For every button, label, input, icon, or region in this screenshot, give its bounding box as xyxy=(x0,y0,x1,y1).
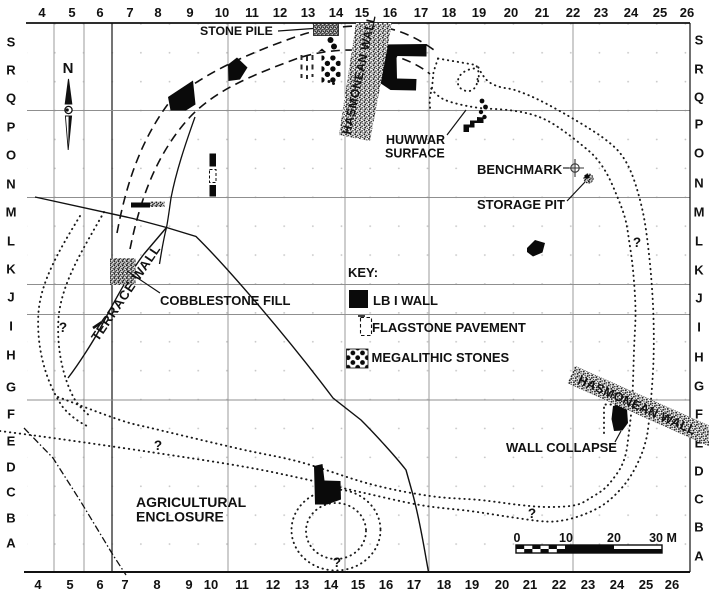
svg-text:C: C xyxy=(694,492,704,507)
svg-text:8: 8 xyxy=(153,577,160,592)
svg-text:18: 18 xyxy=(442,5,456,20)
svg-text:4: 4 xyxy=(34,577,42,592)
svg-text:N: N xyxy=(63,60,74,77)
svg-text:19: 19 xyxy=(465,577,479,592)
svg-text:10: 10 xyxy=(204,577,218,592)
svg-text:21: 21 xyxy=(535,5,549,20)
svg-text:22: 22 xyxy=(566,5,580,20)
svg-text:9: 9 xyxy=(186,5,193,20)
svg-text:O: O xyxy=(694,146,704,161)
svg-text:H: H xyxy=(694,350,703,365)
svg-text:STORAGE PIT: STORAGE PIT xyxy=(477,197,565,212)
svg-text:5: 5 xyxy=(66,577,73,592)
svg-text:G: G xyxy=(694,379,704,394)
svg-text:6: 6 xyxy=(96,5,103,20)
svg-text:7: 7 xyxy=(126,5,133,20)
svg-text:18: 18 xyxy=(437,577,451,592)
svg-text:LB I WALL: LB I WALL xyxy=(373,293,438,308)
svg-text:26: 26 xyxy=(680,5,694,20)
svg-text:30 M: 30 M xyxy=(649,531,677,545)
svg-text:R: R xyxy=(694,62,704,77)
svg-text:22: 22 xyxy=(552,577,566,592)
svg-text:4: 4 xyxy=(38,5,46,20)
svg-text:S: S xyxy=(695,33,704,48)
svg-text:Q: Q xyxy=(694,90,704,105)
svg-text:26: 26 xyxy=(665,577,679,592)
svg-text:11: 11 xyxy=(245,5,259,20)
svg-text:N: N xyxy=(694,176,703,191)
svg-text:?: ? xyxy=(528,506,536,521)
svg-text:F: F xyxy=(695,407,703,422)
svg-text:8: 8 xyxy=(154,5,161,20)
svg-text:D: D xyxy=(6,460,15,475)
svg-text:WALL COLLAPSE: WALL COLLAPSE xyxy=(506,440,617,455)
svg-text:12: 12 xyxy=(266,577,280,592)
svg-text:MEGALITHIC STONES: MEGALITHIC STONES xyxy=(372,350,510,365)
svg-text:20: 20 xyxy=(504,5,518,20)
svg-text:16: 16 xyxy=(379,577,393,592)
svg-text:HUWWAR: HUWWAR xyxy=(386,133,445,147)
svg-text:KEY:: KEY: xyxy=(348,265,378,280)
svg-text:5: 5 xyxy=(68,5,75,20)
svg-text:20: 20 xyxy=(495,577,509,592)
svg-text:O: O xyxy=(6,148,16,163)
svg-text:25: 25 xyxy=(653,5,667,20)
svg-text:K: K xyxy=(694,263,704,278)
svg-text:M: M xyxy=(694,205,705,220)
svg-text:13: 13 xyxy=(301,5,315,20)
svg-text:FLAGSTONE PAVEMENT: FLAGSTONE PAVEMENT xyxy=(372,320,526,335)
svg-text:7: 7 xyxy=(121,577,128,592)
svg-text:19: 19 xyxy=(472,5,486,20)
svg-text:25: 25 xyxy=(639,577,653,592)
svg-text:S: S xyxy=(7,35,16,50)
svg-text:10: 10 xyxy=(559,531,573,545)
svg-text:G: G xyxy=(6,380,16,395)
svg-text:COBBLESTONE FILL: COBBLESTONE FILL xyxy=(160,293,291,308)
svg-text:23: 23 xyxy=(581,577,595,592)
svg-text:9: 9 xyxy=(185,577,192,592)
svg-text:Q: Q xyxy=(6,91,16,106)
svg-text:A: A xyxy=(694,549,704,564)
svg-text:STONE PILE: STONE PILE xyxy=(200,24,273,38)
svg-text:24: 24 xyxy=(610,577,625,592)
svg-text:K: K xyxy=(6,262,16,277)
svg-text:M: M xyxy=(6,205,17,220)
svg-text:14: 14 xyxy=(329,5,344,20)
svg-text:14: 14 xyxy=(324,577,339,592)
svg-text:C: C xyxy=(6,485,16,500)
svg-text:0: 0 xyxy=(514,531,521,545)
svg-text:10: 10 xyxy=(215,5,229,20)
svg-text:12: 12 xyxy=(273,5,287,20)
svg-text:21: 21 xyxy=(523,577,537,592)
svg-text:E: E xyxy=(7,434,16,449)
svg-text:J: J xyxy=(695,291,702,306)
svg-text:J: J xyxy=(7,290,14,305)
svg-text:I: I xyxy=(697,320,701,335)
svg-text:16: 16 xyxy=(383,5,397,20)
svg-text:SURFACE: SURFACE xyxy=(385,147,445,161)
svg-text:F: F xyxy=(7,407,15,422)
svg-text:P: P xyxy=(695,117,704,132)
svg-text:H: H xyxy=(6,348,15,363)
svg-text:B: B xyxy=(694,520,703,535)
svg-text:17: 17 xyxy=(407,577,421,592)
svg-text:R: R xyxy=(6,63,16,78)
svg-text:D: D xyxy=(694,464,703,479)
svg-text:17: 17 xyxy=(414,5,428,20)
svg-text:P: P xyxy=(7,120,16,135)
svg-text:13: 13 xyxy=(295,577,309,592)
svg-text:?: ? xyxy=(633,235,641,250)
svg-text:?: ? xyxy=(333,555,341,570)
svg-text:L: L xyxy=(695,234,703,249)
svg-text:20: 20 xyxy=(607,531,621,545)
svg-text:B: B xyxy=(6,511,15,526)
svg-text:?: ? xyxy=(154,438,162,453)
svg-text:24: 24 xyxy=(624,5,639,20)
svg-text:23: 23 xyxy=(594,5,608,20)
svg-text:L: L xyxy=(7,234,15,249)
svg-text:?: ? xyxy=(59,320,67,335)
svg-text:N: N xyxy=(6,177,15,192)
svg-text:15: 15 xyxy=(351,577,365,592)
svg-text:I: I xyxy=(9,319,13,334)
svg-text:ENCLOSURE: ENCLOSURE xyxy=(136,509,224,525)
svg-text:A: A xyxy=(6,536,16,551)
svg-text:6: 6 xyxy=(96,577,103,592)
svg-text:11: 11 xyxy=(235,577,249,592)
svg-text:BENCHMARK: BENCHMARK xyxy=(477,162,563,177)
